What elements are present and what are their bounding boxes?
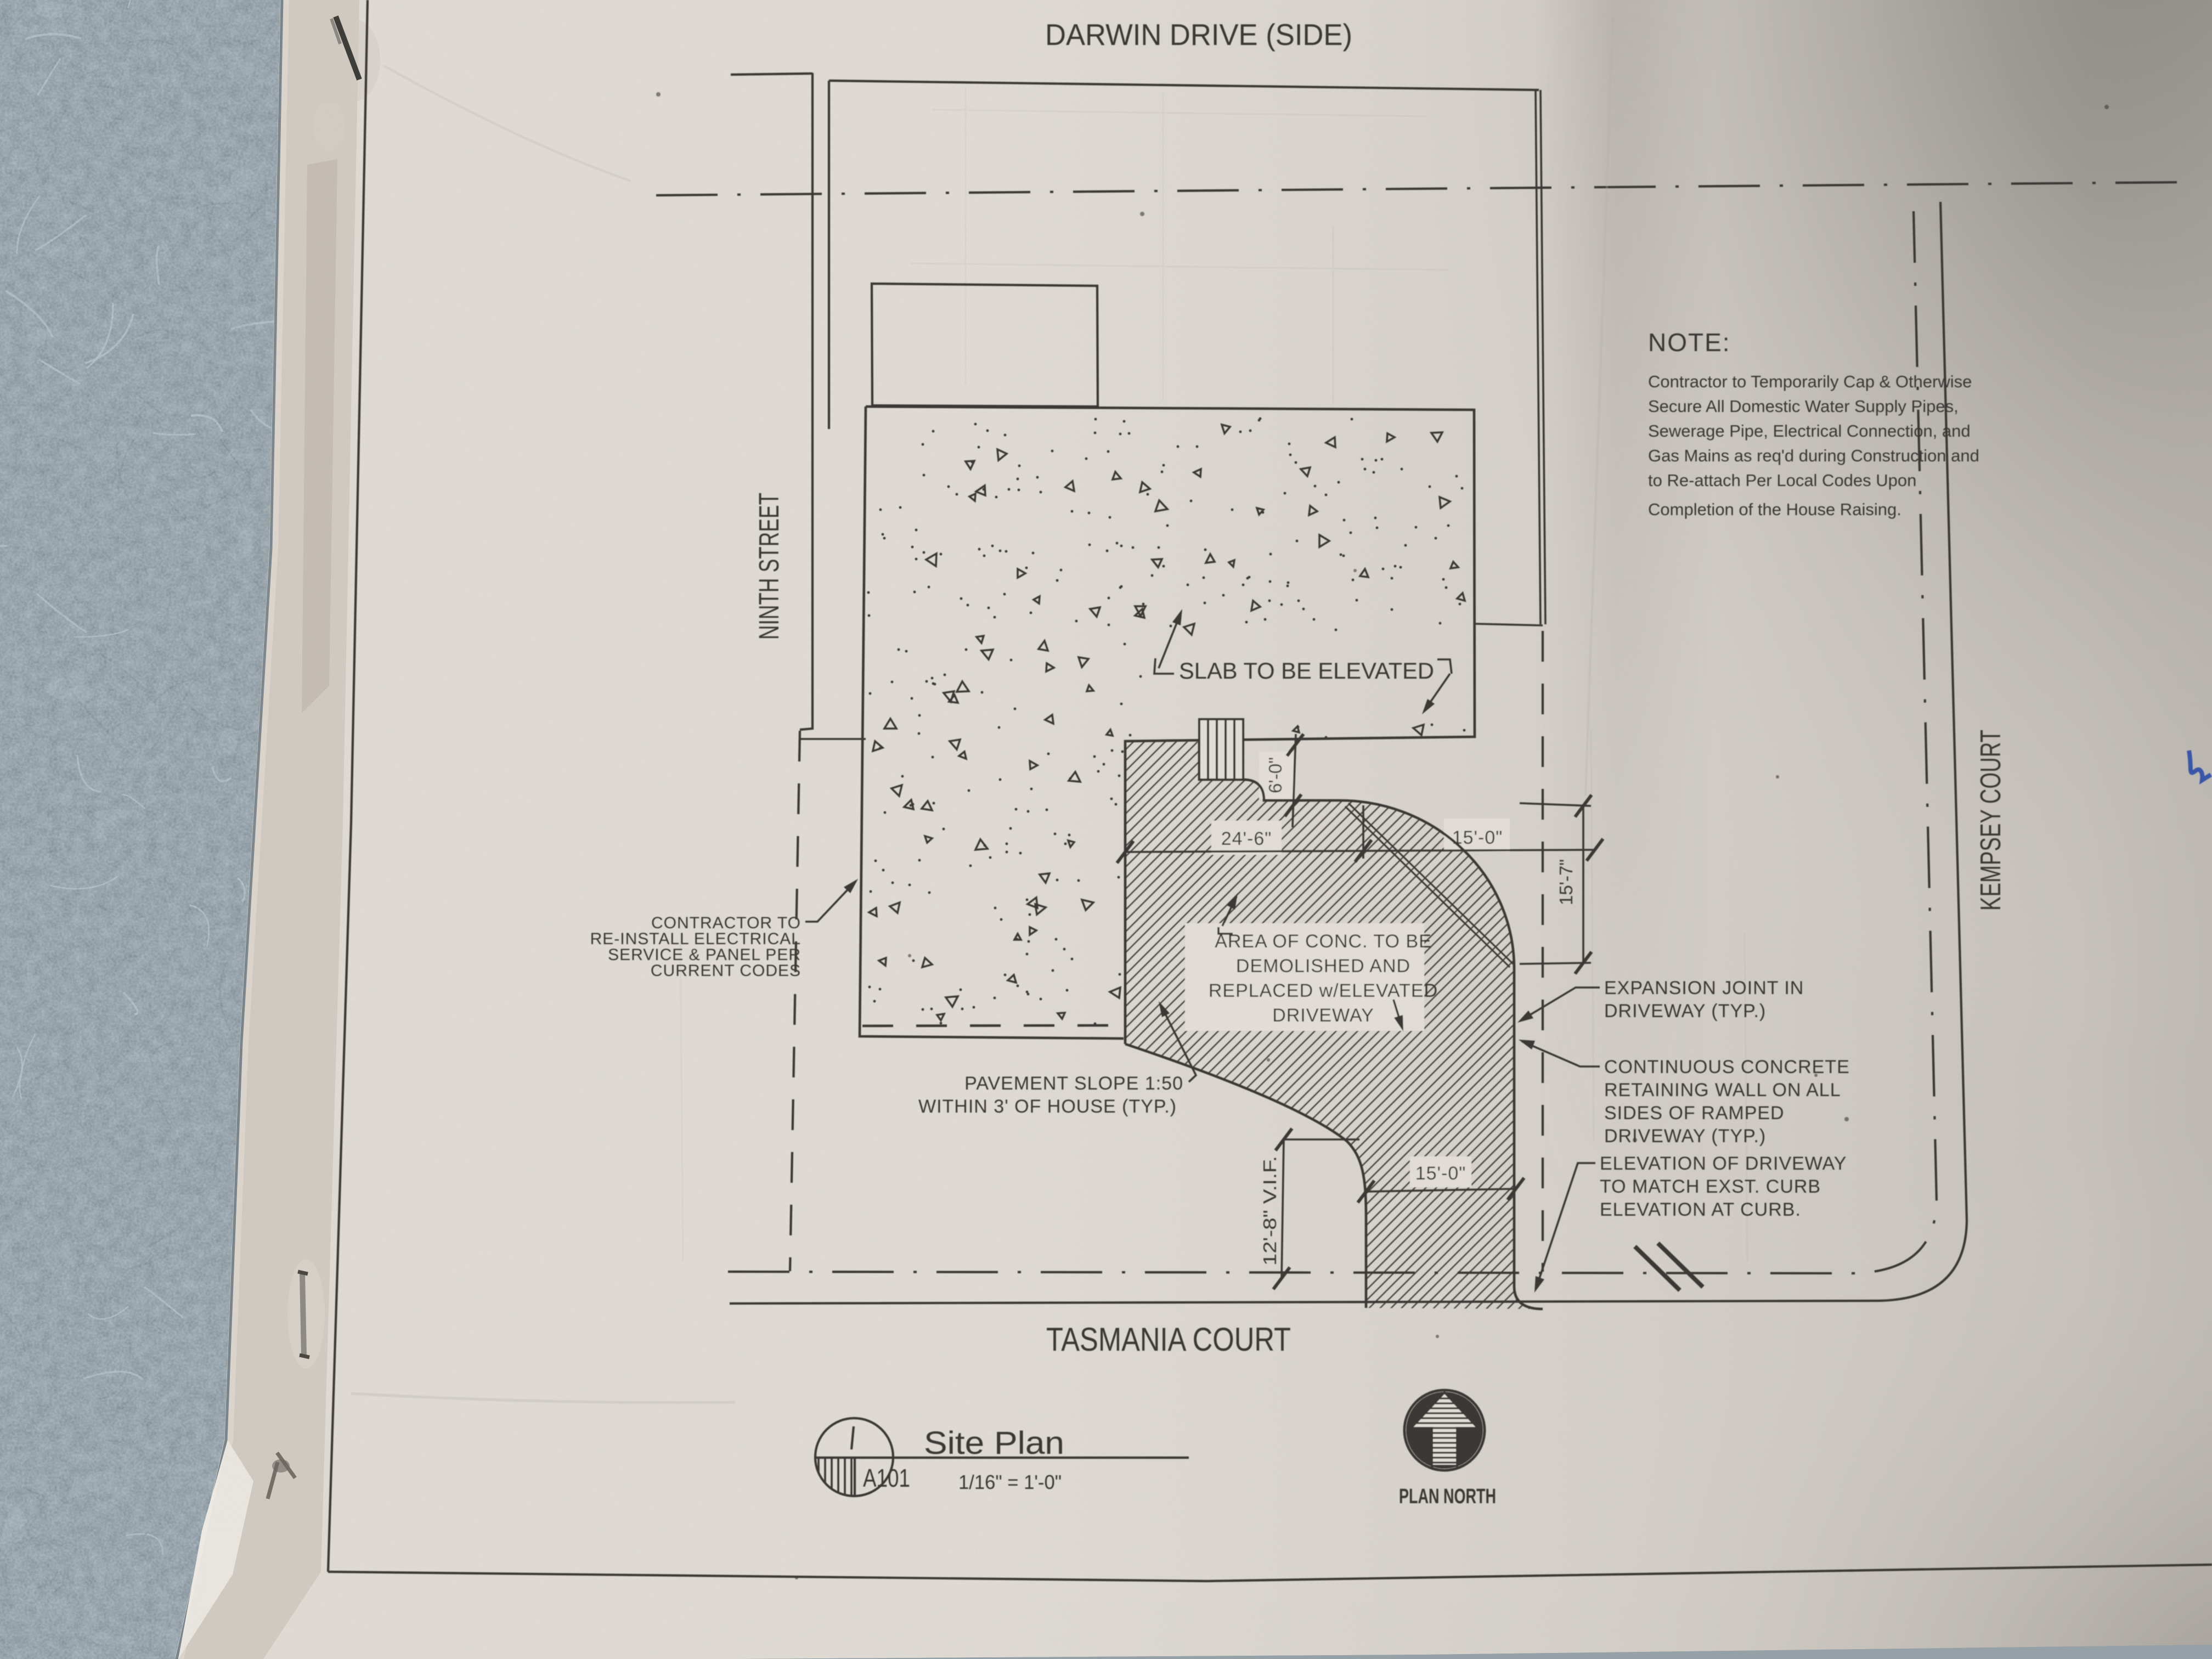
svg-text:TASMANIA COURT: TASMANIA COURT bbox=[1046, 1321, 1291, 1358]
svg-text:CURRENT CODES: CURRENT CODES bbox=[651, 962, 801, 980]
svg-text:Gas Mains as req'd during Cons: Gas Mains as req'd during Construction a… bbox=[1648, 446, 1979, 465]
svg-text:SIDES OF RAMPED: SIDES OF RAMPED bbox=[1604, 1103, 1785, 1124]
svg-text:A101: A101 bbox=[863, 1464, 910, 1492]
svg-text:PLAN NORTH: PLAN NORTH bbox=[1399, 1485, 1496, 1508]
svg-text:DRIVEWAY (TYP.): DRIVEWAY (TYP.) bbox=[1604, 1126, 1766, 1147]
svg-text:DRIVEWAY (TYP.): DRIVEWAY (TYP.) bbox=[1604, 1001, 1766, 1022]
svg-text:NINTH STREET: NINTH STREET bbox=[753, 493, 785, 640]
svg-text:Contractor to Temporarily Cap: Contractor to Temporarily Cap & Otherwis… bbox=[1648, 372, 1972, 391]
svg-text:WITHIN 3' OF HOUSE (TYP.): WITHIN 3' OF HOUSE (TYP.) bbox=[918, 1096, 1177, 1117]
svg-text:NOTE:: NOTE: bbox=[1648, 328, 1731, 357]
svg-text:6'-0": 6'-0" bbox=[1265, 757, 1285, 793]
svg-text:PAVEMENT SLOPE 1:50: PAVEMENT SLOPE 1:50 bbox=[964, 1073, 1183, 1094]
svg-text:RETAINING WALL ON ALL: RETAINING WALL ON ALL bbox=[1604, 1080, 1841, 1101]
svg-text:Secure All Domestic Water Supp: Secure All Domestic Water Supply Pipes, bbox=[1648, 397, 1959, 416]
svg-text:EXPANSION JOINT IN: EXPANSION JOINT IN bbox=[1604, 978, 1804, 998]
svg-text:15'-0": 15'-0" bbox=[1415, 1163, 1466, 1184]
svg-text:1/16" = 1'-0": 1/16" = 1'-0" bbox=[958, 1471, 1062, 1493]
svg-text:Sewerage Pipe, Electrical Conn: Sewerage Pipe, Electrical Connection, an… bbox=[1648, 421, 1971, 441]
svg-text:SLAB TO BE ELEVATED: SLAB TO BE ELEVATED bbox=[1179, 658, 1434, 684]
svg-text:ELEVATION AT CURB.: ELEVATION AT CURB. bbox=[1600, 1199, 1801, 1220]
svg-text:TO MATCH EXST. CURB: TO MATCH EXST. CURB bbox=[1600, 1176, 1821, 1197]
svg-text:DRIVEWAY: DRIVEWAY bbox=[1272, 1005, 1374, 1026]
svg-text:to Re-attach Per Local Codes U: to Re-attach Per Local Codes Upon bbox=[1648, 471, 1916, 490]
svg-text:Completion of the House Raisin: Completion of the House Raising. bbox=[1648, 500, 1901, 519]
svg-text:15'-7": 15'-7" bbox=[1556, 859, 1576, 905]
svg-text:12'-8" V.I.F.: 12'-8" V.I.F. bbox=[1260, 1156, 1280, 1266]
svg-text:Site Plan: Site Plan bbox=[924, 1425, 1064, 1461]
svg-text:DARWIN DRIVE (SIDE): DARWIN DRIVE (SIDE) bbox=[1045, 18, 1352, 52]
svg-text:24'-6": 24'-6" bbox=[1221, 828, 1272, 849]
svg-text:15'-0": 15'-0" bbox=[1452, 827, 1503, 848]
svg-text:KEMPSEY COURT: KEMPSEY COURT bbox=[1975, 730, 2007, 911]
svg-text:ELEVATION OF DRIVEWAY: ELEVATION OF DRIVEWAY bbox=[1600, 1153, 1847, 1174]
svg-text:CONTINUOUS CONCRETE: CONTINUOUS CONCRETE bbox=[1604, 1057, 1850, 1077]
svg-text:DEMOLISHED AND: DEMOLISHED AND bbox=[1236, 956, 1410, 977]
svg-text:REPLACED w/ELEVATED: REPLACED w/ELEVATED bbox=[1209, 980, 1438, 1001]
svg-text:AREA OF CONC. TO BE: AREA OF CONC. TO BE bbox=[1215, 931, 1432, 952]
